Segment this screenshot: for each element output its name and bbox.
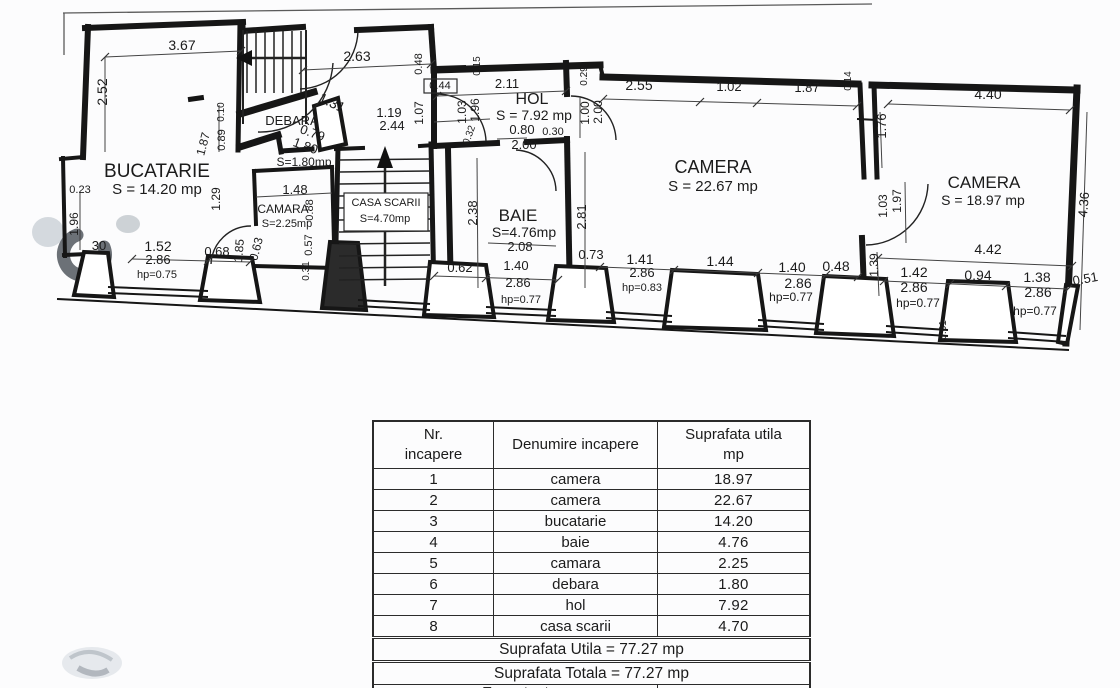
room-area-debara: S=1.80mp	[276, 155, 331, 169]
room-area-cell: 2.25	[658, 553, 811, 574]
dim-label: 1.07	[412, 101, 426, 125]
room-area-camera-2: S = 18.97 mp	[941, 192, 1025, 208]
table-row: 5camara2.25	[373, 553, 810, 574]
area-table-body: 1camera18.972camera22.673bucatarie14.204…	[373, 469, 810, 638]
dim-label: 0.44	[429, 80, 450, 92]
dim-label: 0.61	[938, 320, 949, 340]
room-area-cell: 14.20	[658, 511, 811, 532]
room-area-baie: S=4.76mp	[492, 224, 556, 240]
dim-label: 0.31	[301, 261, 312, 281]
partial-row: Executant	[373, 685, 810, 688]
dim-label: 1.00	[578, 101, 592, 125]
dim-label: 1.97	[890, 189, 904, 213]
table-row: 6debara1.80	[373, 574, 810, 595]
smudge-blob	[32, 217, 64, 247]
stair-direction-arrow	[377, 146, 393, 168]
dim-label: 0.48	[413, 53, 425, 74]
dim-label: 2.86	[784, 275, 811, 291]
dim-label: 1.03	[876, 194, 890, 218]
room-name-cell: hol	[494, 595, 658, 616]
dim-label: 2.11	[495, 76, 519, 91]
header-cell: Denumire incapere	[494, 421, 658, 469]
smudge-blob	[116, 215, 140, 233]
dim-label: 2.52	[94, 78, 110, 105]
dim-label: 2.38	[465, 200, 480, 225]
partial-cell	[658, 685, 811, 688]
room-label-camera-2: CAMERA	[948, 173, 1021, 192]
header-cell: Nr.incapere	[373, 421, 494, 469]
table-row: 1camera18.97	[373, 469, 810, 490]
dim-label: 1.87	[794, 80, 819, 95]
dim-label: 0.10	[216, 102, 227, 122]
dim-label: 2.00	[591, 100, 605, 124]
header-cell: Suprafata utilamp	[658, 421, 811, 469]
dim-label: 0.51	[1071, 269, 1099, 288]
room-number-cell: 1	[373, 469, 494, 490]
room-label-camera-1: CAMERA	[674, 157, 751, 177]
room-name-cell: camera	[494, 490, 658, 511]
dim-label: 2.86	[1024, 284, 1051, 300]
dim-label: 1.03	[455, 100, 469, 124]
room-area-cell: 7.92	[658, 595, 811, 616]
dim-label: 1.87	[193, 131, 213, 157]
dim-label: 2.00	[511, 137, 536, 152]
dim-label: 1.29	[209, 187, 223, 211]
summary-row: Suprafata Utila = 77.27 mp	[373, 638, 810, 662]
room-number-cell: 2	[373, 490, 494, 511]
room-number-cell: 5	[373, 553, 494, 574]
table-row: 8casa scarii4.70	[373, 616, 810, 638]
dim-label: hp=0.83	[622, 282, 662, 294]
dim-label: 2.55	[625, 77, 652, 93]
table-row: 4baie4.76	[373, 532, 810, 553]
room-name-cell: baie	[494, 532, 658, 553]
dim-label: hp=0.77	[501, 294, 541, 306]
dim-label: 0.29	[579, 66, 590, 86]
dim-label: 1.40	[778, 259, 805, 275]
dim-label: 1.40	[503, 258, 528, 273]
area-table-footer: Suprafata Utila = 77.27 mpSuprafata Tota…	[373, 638, 810, 688]
dim-label: 1.96	[468, 98, 482, 122]
dim-label: 0.57	[303, 234, 315, 255]
dim-label: 1.76	[874, 113, 889, 138]
dim-label: 2.63	[343, 48, 370, 64]
dim-label: 0.94	[964, 267, 991, 283]
room-area-camera-1: S = 22.67 mp	[668, 178, 758, 195]
room-area-casa-scarii: S=4.70mp	[360, 213, 410, 225]
dim-label: 0.73	[578, 247, 603, 262]
table-row: 3bucatarie14.20	[373, 511, 810, 532]
dim-label: 0.89	[216, 129, 228, 150]
partial-cell: Executant	[373, 685, 658, 688]
room-label-hol: HOL	[516, 91, 549, 108]
dim-label: 1.39	[867, 253, 881, 277]
summary-cell: Suprafata Utila = 77.27 mp	[373, 638, 810, 662]
room-number-cell: 8	[373, 616, 494, 638]
dim-label: 1.85	[231, 238, 247, 263]
table-row: 2camera22.67	[373, 490, 810, 511]
dim-label: 0.62	[447, 260, 472, 275]
room-area-cell: 4.76	[658, 532, 811, 553]
dim-label: 2.86	[145, 252, 170, 267]
dim-label: hp=0.75	[137, 269, 177, 281]
room-number-cell: 4	[373, 532, 494, 553]
area-table-header: Nr.incapereDenumire incapereSuprafata ut…	[373, 421, 810, 469]
dim-label: 1.96	[67, 212, 81, 236]
room-area-cell: 4.70	[658, 616, 811, 638]
dim-label: 0.80	[509, 122, 534, 137]
room-name-cell: bucatarie	[494, 511, 658, 532]
room-area-cell: 1.80	[658, 574, 811, 595]
dim-label: 0.88	[304, 199, 316, 220]
room-area-hol: S = 7.92 mp	[496, 107, 572, 123]
dim-label: 3.67	[168, 37, 195, 53]
dim-label: 1.38	[1023, 269, 1050, 285]
room-area-cell: 22.67	[658, 490, 811, 511]
room-area-cell: 18.97	[658, 469, 811, 490]
room-name-cell: camera	[494, 469, 658, 490]
dim-label: 4.40	[974, 86, 1001, 102]
dim-label: 2.44	[379, 118, 404, 133]
room-label-camara: CAMARA	[257, 202, 308, 216]
dim-label: 0.63	[246, 236, 266, 262]
dim-label: 1.42	[900, 264, 927, 280]
dim-label: 2.86	[900, 279, 927, 295]
room-area-bucatarie: S = 14.20 mp	[112, 181, 202, 198]
dim-label: hp=0.77	[1013, 304, 1057, 318]
room-name-cell: casa scarii	[494, 616, 658, 638]
area-table: Nr.incapereDenumire incapereSuprafata ut…	[372, 420, 811, 688]
dim-label: 2.86	[629, 265, 654, 280]
dim-label: 0.15	[472, 56, 483, 76]
door-leaf-mark	[188, 95, 205, 102]
table-row: 7hol7.92	[373, 595, 810, 616]
dim-label: 4.36	[1075, 191, 1092, 218]
dim-label: hp=0.77	[769, 290, 813, 304]
room-number-cell: 7	[373, 595, 494, 616]
dim-label: 0.30	[542, 126, 563, 138]
room-number-cell: 6	[373, 574, 494, 595]
dim-label: 0.68	[204, 244, 229, 259]
dim-label: 1.48	[282, 182, 307, 197]
room-name-cell: camara	[494, 553, 658, 574]
dim-label: 1.02	[716, 79, 741, 94]
room-number-cell: 3	[373, 511, 494, 532]
dim-label: 0.23	[69, 184, 90, 196]
dim-label: 4.42	[974, 241, 1001, 257]
summary-cell: Suprafata Totala = 77.27 mp	[373, 662, 810, 685]
dim-label: 2.86	[505, 275, 530, 290]
room-label-baie: BAIE	[499, 206, 538, 225]
dim-label: 0.48	[822, 258, 849, 274]
room-label-bucatarie: BUCATARIE	[104, 161, 210, 182]
room-label-casa-scarii: CASA SCARII	[351, 197, 420, 209]
summary-row: Suprafata Totala = 77.27 mp	[373, 662, 810, 685]
dim-label: 30	[92, 238, 106, 253]
dim-label: 2.08	[507, 239, 532, 254]
dim-label: 1.44	[706, 253, 733, 269]
dim-label: hp=0.77	[896, 296, 940, 310]
dim-label: 0.14	[843, 71, 854, 91]
dim-label: 2.81	[574, 204, 589, 229]
room-name-cell: debara	[494, 574, 658, 595]
scanned-floor-plan-page: BUCATARIES = 14.20 mpHOLS = 7.92 mpCAMER…	[0, 0, 1120, 688]
